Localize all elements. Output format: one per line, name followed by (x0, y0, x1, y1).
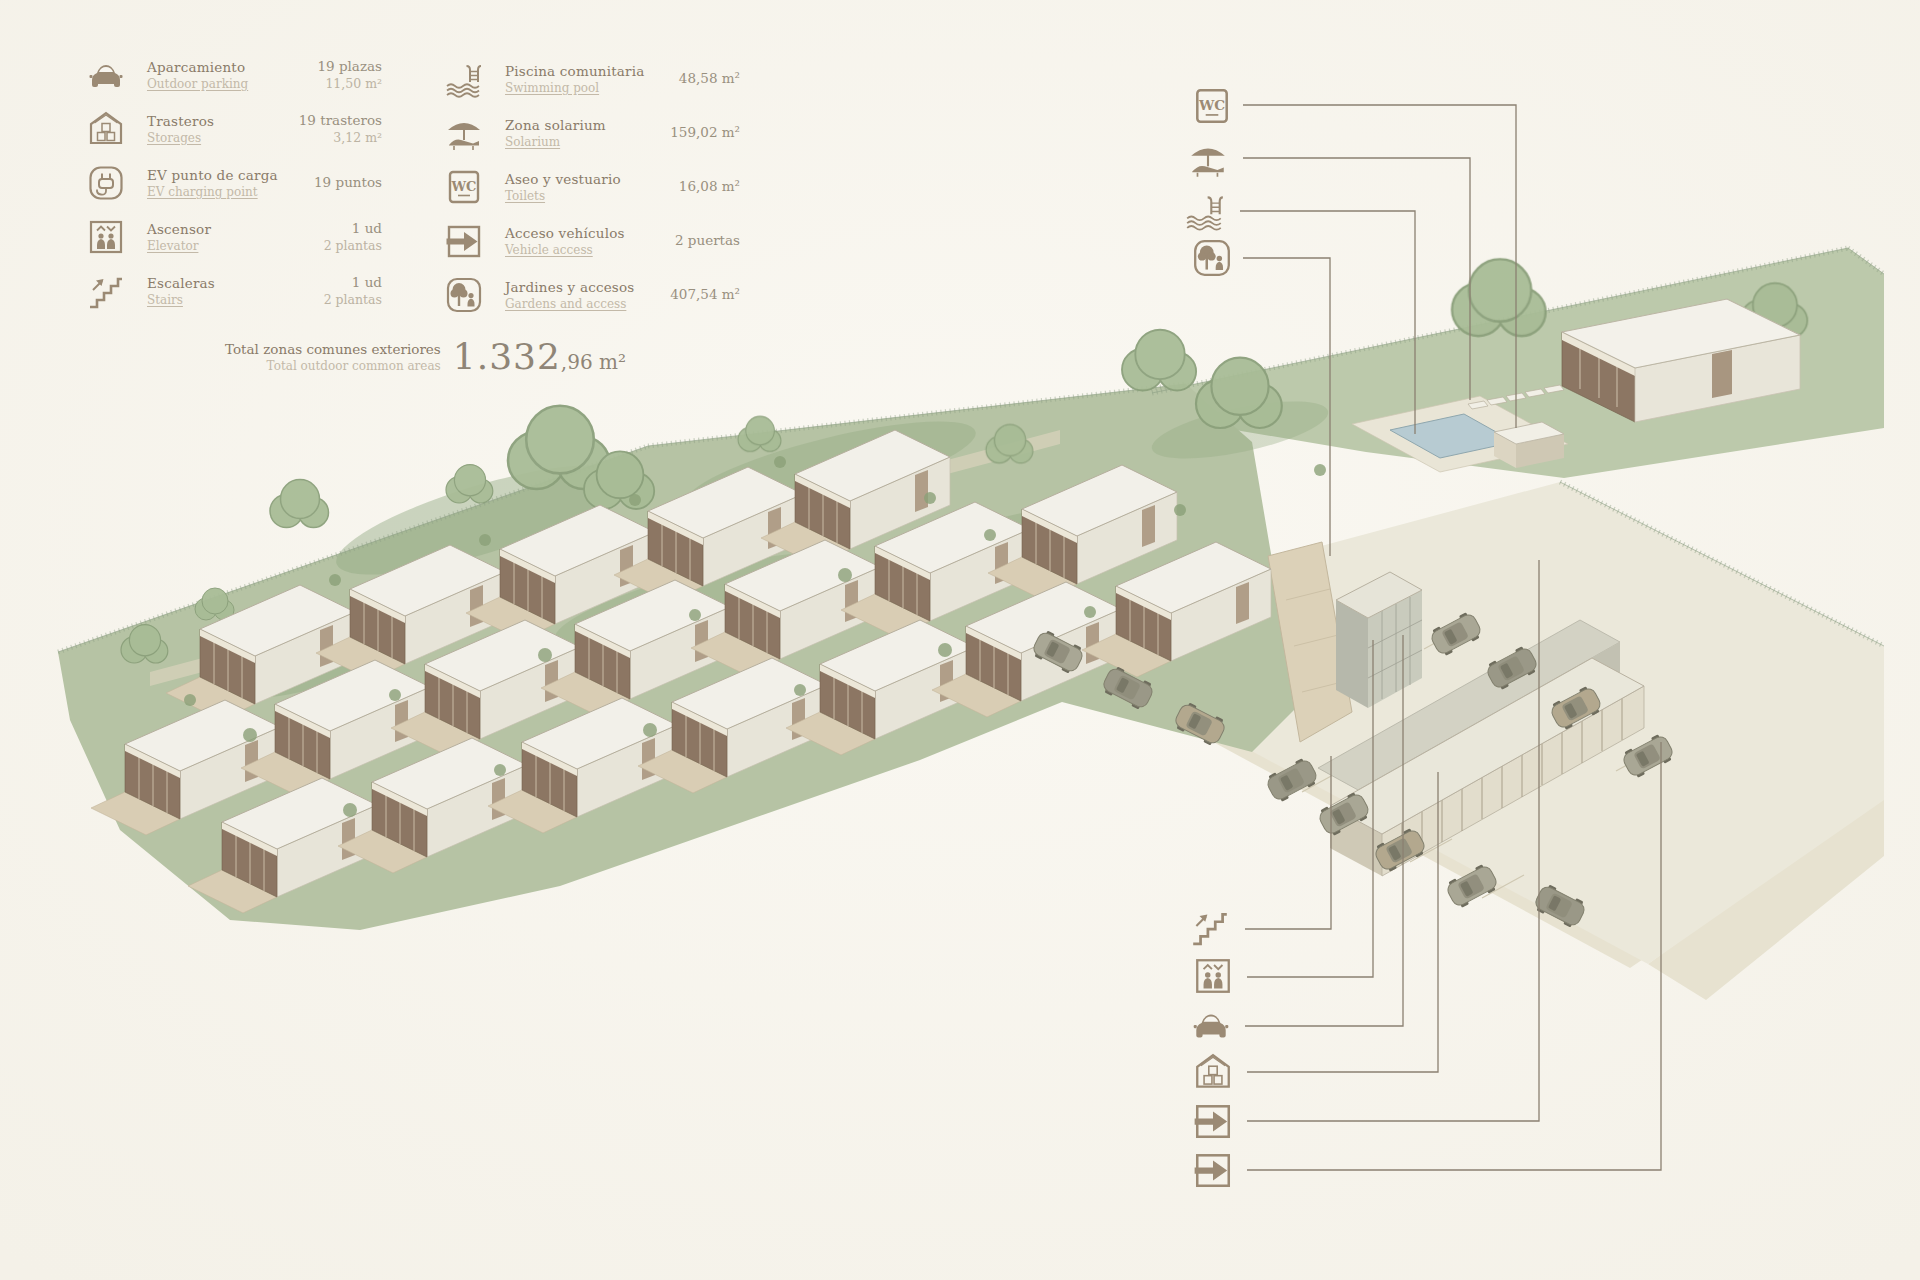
legend-row-ascensor: AscensorElevator 1 ud2 plantas (86, 216, 382, 257)
legend-label-en: Toilets (505, 189, 664, 203)
legend-label-es: Jardines y accesos (505, 279, 655, 295)
legend-label-en: Storages (147, 131, 284, 145)
legend-label-es: Aseo y vestuario (505, 171, 664, 187)
legend-row-solarium: Zona solariumSolarium 159,02 m² (444, 112, 740, 153)
masterplan-poster: AparcamientoOutdoor parking 19 plazas11,… (0, 0, 1920, 1280)
legend-label-es: Acceso vehículos (505, 225, 660, 241)
legend-value-2: 2 plantas (324, 238, 382, 253)
legend-row-aseo: Aseo y vestuarioToilets 16,08 m² (444, 166, 740, 207)
legend-value: 16,08 m² (679, 178, 740, 194)
total-value: 1.332,96 m² (453, 336, 626, 377)
ev-charging-icon (86, 163, 126, 203)
legend-label-en: Solarium (505, 135, 655, 149)
legend-label-en: Stairs (147, 293, 309, 307)
callout-vehicle-access-icon-2 (1192, 1149, 1234, 1191)
legend-row-trasteros: TrasterosStorages 19 trasteros3,12 m² (86, 108, 382, 149)
legend-value: 48,58 m² (679, 70, 740, 86)
legend-value: 19 puntos (314, 174, 382, 190)
legend-row-acceso: Acceso vehículosVehicle access 2 puertas (444, 220, 740, 261)
elevator-icon (86, 217, 126, 257)
stairs-icon (86, 271, 126, 311)
total-label-en: Total outdoor common areas (225, 359, 441, 373)
legend-row-ev: EV punto de cargaEV charging point 19 pu… (86, 162, 382, 203)
legend-row-escaleras: EscalerasStairs 1 ud2 plantas (86, 270, 382, 311)
callout-elevator-icon (1192, 955, 1234, 997)
gardens-icon (444, 275, 484, 315)
callout-solarium-icon (1187, 138, 1229, 180)
callout-car-icon (1190, 1004, 1232, 1046)
legend-row-jardines: Jardines y accesosGardens and access 407… (444, 274, 740, 315)
legend-row-piscina: Piscina comunitariaSwimming pool 48,58 m… (444, 58, 740, 99)
legend-row-aparcamiento: AparcamientoOutdoor parking 19 plazas11,… (86, 54, 382, 95)
storage-icon (86, 109, 126, 149)
legend-value: 159,02 m² (670, 124, 740, 140)
total-common-areas: Total zonas comunes exteriores Total out… (148, 336, 626, 377)
callout-wc-icon (1191, 85, 1233, 127)
legend-label-en: Gardens and access (505, 297, 655, 311)
legend-label-en: Vehicle access (505, 243, 660, 257)
vehicle-access-icon (444, 221, 484, 261)
legend-label-es: Ascensor (147, 221, 309, 237)
callout-vehicle-access-icon (1192, 1100, 1234, 1142)
callout-gardens-icon (1191, 237, 1233, 279)
legend-label-es: Escaleras (147, 275, 309, 291)
legend-value-2: 11,50 m² (317, 76, 382, 91)
legend-label-en: Elevator (147, 239, 309, 253)
legend-label-en: EV charging point (147, 185, 299, 199)
legend-label-es: EV punto de carga (147, 167, 299, 183)
legend-label-es: Aparcamiento (147, 59, 302, 75)
legend-label-en: Swimming pool (505, 81, 664, 95)
solarium-icon (444, 113, 484, 153)
legend-label-en: Outdoor parking (147, 77, 302, 91)
legend-value: 2 puertas (675, 232, 740, 248)
legend-value: 1 ud (324, 220, 382, 236)
legend-value-2: 3,12 m² (299, 130, 382, 145)
legend-column-2: Piscina comunitariaSwimming pool 48,58 m… (444, 58, 740, 315)
legend-value: 407,54 m² (670, 286, 740, 302)
car-icon (86, 55, 126, 95)
callout-storage-icon (1192, 1051, 1234, 1093)
legend-label-es: Trasteros (147, 113, 284, 129)
legend-column-1: AparcamientoOutdoor parking 19 plazas11,… (86, 54, 382, 311)
pool-icon (444, 59, 484, 99)
legend-value: 1 ud (324, 274, 382, 290)
callout-pool-icon (1184, 190, 1226, 232)
legend-value-2: 2 plantas (324, 292, 382, 307)
legend-label-es: Zona solarium (505, 117, 655, 133)
legend-value: 19 plazas (317, 58, 382, 74)
legend-label-es: Piscina comunitaria (505, 63, 664, 79)
callout-stairs-icon (1189, 906, 1231, 948)
total-label-es: Total zonas comunes exteriores (225, 341, 441, 357)
legend-value: 19 trasteros (299, 112, 382, 128)
wc-icon (444, 167, 484, 207)
